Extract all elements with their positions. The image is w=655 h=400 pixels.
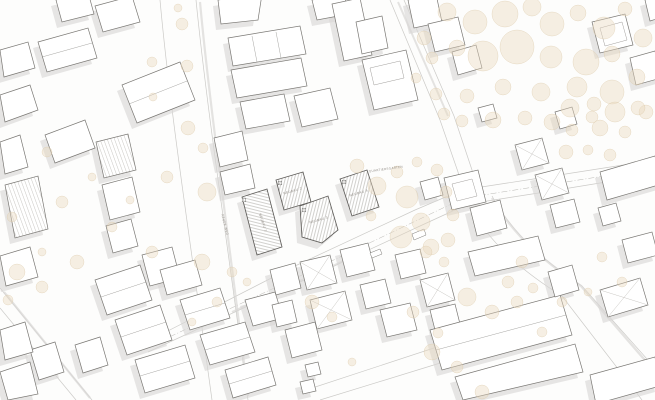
tree-canopy <box>42 147 52 157</box>
tree-canopy <box>570 5 586 21</box>
tree-canopy <box>126 196 134 204</box>
tree-canopy <box>198 143 208 153</box>
tree-canopy <box>426 52 438 64</box>
tree-canopy <box>212 297 222 307</box>
tree-canopy <box>495 79 511 95</box>
tree-canopy <box>629 69 645 85</box>
tree-canopy <box>485 112 501 128</box>
tree-canopy <box>433 328 443 338</box>
tree-canopy <box>420 246 432 258</box>
tree-canopy <box>475 385 489 399</box>
building-footprint <box>0 135 28 174</box>
tree-canopy <box>88 173 96 181</box>
tree-canopy <box>458 288 476 306</box>
tree-canopy <box>460 89 474 103</box>
tree-canopy <box>463 10 487 34</box>
tree-canopy <box>544 114 560 130</box>
building-number-text: 4 <box>343 180 345 184</box>
building-footprint <box>0 42 35 77</box>
tree-canopy <box>327 312 337 322</box>
building-footprint <box>300 379 316 394</box>
tree-canopy <box>149 93 157 101</box>
tree-canopy <box>430 88 442 100</box>
tree-canopy <box>584 288 592 296</box>
tree-canopy <box>176 18 188 30</box>
tree-canopy <box>492 1 518 27</box>
tree-canopy <box>348 358 356 366</box>
building-footprint <box>0 85 38 122</box>
building-footprint <box>45 120 95 163</box>
tree-canopy <box>592 120 608 136</box>
tree-canopy <box>181 60 193 72</box>
tree-canopy <box>447 209 459 221</box>
tree-canopy <box>161 171 173 183</box>
tree-canopy <box>500 30 534 64</box>
tree-canopy <box>366 211 376 221</box>
tree-canopy <box>9 264 25 280</box>
tree-canopy <box>407 306 419 318</box>
tree-canopy <box>518 111 532 125</box>
tree-canopy <box>528 283 538 293</box>
tree-canopy <box>532 83 550 101</box>
tree-canopy <box>390 226 412 248</box>
tree-canopy <box>561 99 579 117</box>
tree-canopy <box>537 327 547 337</box>
tree-canopy <box>38 248 46 256</box>
tree-canopy <box>368 177 386 195</box>
tree-canopy <box>438 108 450 120</box>
tree-canopy <box>188 318 196 326</box>
building-footprint <box>218 0 262 24</box>
tree-canopy <box>147 57 157 67</box>
tree-canopy <box>70 255 84 269</box>
tree-canopy <box>566 124 578 136</box>
site-plan-canvas: NEUBAU 1NEUBAU 2NEUBAU 3NEUBAU 4QUARTIER… <box>0 0 655 400</box>
tree-canopy <box>107 222 117 232</box>
building-number-text: 1 <box>243 198 245 202</box>
tree-canopy <box>559 145 573 159</box>
tree-canopy <box>597 252 607 262</box>
building-footprint <box>0 322 33 360</box>
building-footprint <box>214 131 248 167</box>
tree-canopy <box>439 257 449 267</box>
tree-canopy <box>567 77 587 97</box>
tree-canopy <box>540 46 562 68</box>
tree-canopy <box>593 17 615 39</box>
tree-canopy <box>456 115 468 127</box>
building-footprint <box>360 279 391 309</box>
tree-canopy <box>243 278 251 286</box>
tree-canopy <box>573 49 599 75</box>
site-plan: NEUBAU 1NEUBAU 2NEUBAU 3NEUBAU 4QUARTIER… <box>0 0 655 400</box>
tree-canopy <box>194 254 210 270</box>
tree-canopy <box>305 295 319 309</box>
tree-canopy <box>619 126 631 138</box>
building-footprint <box>600 156 655 200</box>
tree-canopy <box>350 159 364 173</box>
tree-canopy <box>634 29 652 47</box>
tree-canopy <box>449 40 465 56</box>
tree-canopy <box>412 213 430 231</box>
tree-canopy <box>604 46 620 62</box>
tree-canopy <box>583 145 593 155</box>
tree-canopy <box>198 183 216 201</box>
tree-canopy <box>146 246 158 258</box>
tree-canopy <box>502 276 514 288</box>
tree-canopy <box>396 186 418 208</box>
tree-canopy <box>523 0 541 16</box>
tree-canopy <box>600 80 624 104</box>
tree-canopy <box>7 212 17 222</box>
tree-canopy <box>431 164 443 176</box>
tree-canopy <box>412 157 422 167</box>
tree-canopy <box>604 149 616 161</box>
tree-canopy <box>174 4 182 12</box>
tree-canopy <box>417 31 431 45</box>
tree-canopy <box>485 305 499 319</box>
building-number-text: 2 <box>279 181 281 185</box>
tree-canopy <box>56 196 68 208</box>
tree-canopy <box>441 233 455 247</box>
tree-canopy <box>440 186 452 198</box>
plan-label: NEUER WEG <box>220 214 229 236</box>
tree-canopy <box>618 2 632 16</box>
tree-canopy <box>587 97 601 111</box>
tree-canopy <box>511 296 523 308</box>
tree-canopy <box>540 12 564 36</box>
tree-canopy <box>631 101 645 115</box>
tree-canopy <box>227 267 237 277</box>
tree-canopy <box>605 102 625 122</box>
building-number-text: 3 <box>303 208 305 212</box>
tree-canopy <box>617 277 627 287</box>
tree-canopy <box>3 295 13 305</box>
tree-canopy <box>451 361 463 373</box>
building-footprint <box>305 362 321 377</box>
tree-canopy <box>411 73 421 83</box>
tree-canopy <box>424 344 440 360</box>
tree-canopy <box>468 41 498 71</box>
tree-canopy <box>36 281 48 293</box>
building-footprint <box>272 300 297 327</box>
tree-canopy <box>516 256 528 268</box>
tree-canopy <box>438 3 456 21</box>
building-footprint <box>270 263 301 295</box>
tree-canopy <box>557 297 567 307</box>
traffic-island <box>370 249 382 258</box>
building-footprint <box>356 16 388 54</box>
tree-canopy <box>181 121 195 135</box>
